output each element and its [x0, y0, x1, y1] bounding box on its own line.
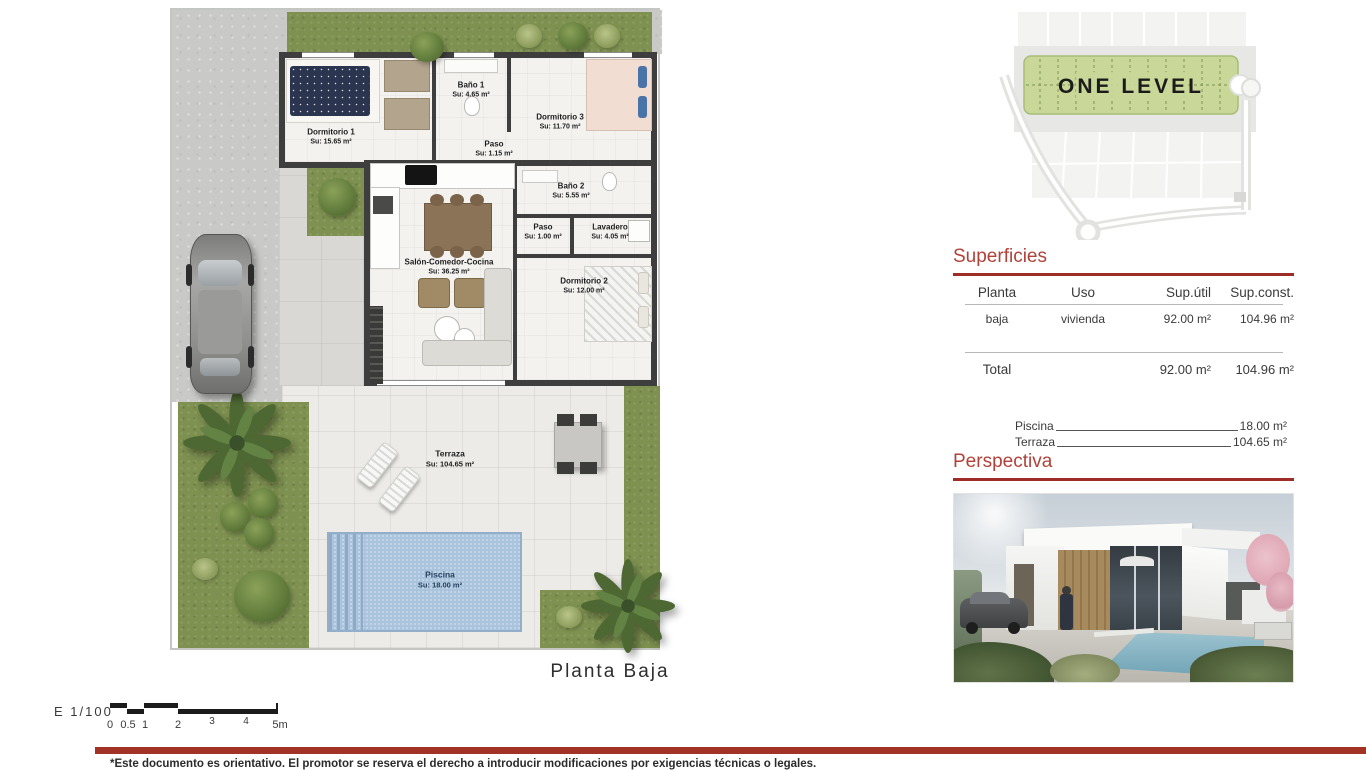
- render-blossom-tree: [1266, 572, 1294, 612]
- footer-rule: [95, 747, 1366, 754]
- extra-piscina: Piscina 18.00 m²: [1015, 419, 1287, 433]
- render-grass-tuft: [1050, 654, 1120, 683]
- superficies-table-header: Planta Uso Sup.útil Sup.const.: [953, 285, 1294, 300]
- car-windshield: [198, 260, 242, 286]
- window: [302, 52, 354, 58]
- pillow: [638, 96, 647, 118]
- total-sup-const: 104.96 m²: [1211, 362, 1294, 377]
- scale-tick-2: 2: [175, 719, 181, 731]
- palm-tree: [182, 388, 292, 498]
- floor-plan: Dormitorio 1Su: 15.65 m² Baño 1Su: 4.65 …: [170, 8, 660, 650]
- perspectiva-title: Perspectiva: [953, 451, 1294, 481]
- scale-tick-05: 0.5: [120, 719, 135, 731]
- extra-piscina-label: Piscina: [1015, 419, 1054, 433]
- cell-uso: vivienda: [1041, 312, 1125, 326]
- tv-unit: [370, 306, 383, 384]
- col-sup-const: Sup.const.: [1211, 285, 1294, 300]
- palm-tree: [580, 558, 676, 654]
- scale-label: E 1/100: [54, 704, 113, 719]
- wall: [513, 160, 517, 386]
- extra-terraza-label: Terraza: [1015, 435, 1055, 449]
- car: [187, 234, 253, 392]
- room-label-piscina: PiscinaSu: 18.00 m²: [418, 570, 462, 591]
- chair: [450, 194, 464, 206]
- render-wall-right: [1182, 546, 1228, 621]
- scale-tick-0: 0: [107, 719, 113, 731]
- perspectiva-section: Perspectiva: [953, 451, 1294, 481]
- wall: [570, 216, 574, 256]
- sofa: [422, 340, 512, 366]
- room-label-dormitorio2: Dormitorio 2Su: 12.00 m²: [560, 276, 608, 295]
- wardrobe: [384, 98, 430, 130]
- pillow: [638, 66, 647, 88]
- render-wheel: [1008, 622, 1020, 634]
- flower-bush: [192, 558, 218, 580]
- wardrobe: [384, 60, 430, 92]
- outdoor-chair: [580, 414, 597, 426]
- pillow: [638, 306, 649, 328]
- cell-sup-const: 104.96 m²: [1211, 312, 1294, 326]
- room-label-lavadero: LavaderoSu: 4.05 m²: [591, 222, 628, 241]
- pool-steps: [329, 534, 363, 630]
- room-label-bano2: Baño 2Su: 5.55 m²: [552, 181, 589, 200]
- car-roof: [198, 290, 242, 354]
- wall: [517, 214, 657, 218]
- superficies-table-row: baja vivienda 92.00 m² 104.96 m²: [953, 312, 1294, 326]
- cell-planta: baja: [953, 312, 1041, 326]
- site-plan: ONE LEVEL: [988, 4, 1280, 240]
- render-wheel: [966, 622, 978, 634]
- scale-tick-4: 4: [243, 716, 249, 727]
- chair: [430, 194, 444, 206]
- bush: [244, 518, 274, 548]
- footer-disclaimer: *Este documento es orientativo. El promo…: [110, 758, 1310, 770]
- chair: [470, 246, 484, 258]
- patio-bush: [318, 178, 356, 216]
- wall: [507, 52, 511, 132]
- extra-terraza-value: 104.65 m²: [1233, 435, 1287, 449]
- dining-table: [424, 203, 492, 251]
- flower-bush: [594, 24, 620, 48]
- divider: [965, 352, 1283, 353]
- kitchen-counter: [370, 163, 515, 189]
- armchair: [418, 278, 450, 308]
- leader-line: [1056, 430, 1238, 431]
- one-level-label: ONE LEVEL: [1058, 75, 1204, 98]
- room-label-terraza: TerrazaSu: 104.65 m²: [426, 449, 474, 470]
- render-car-roof: [970, 592, 1010, 604]
- divider: [965, 304, 1283, 305]
- bed-dorm1-duvet: [290, 66, 370, 116]
- scale-tick-3: 3: [209, 716, 215, 727]
- room-label-paso1: PasoSu: 1.15 m²: [475, 139, 512, 158]
- room-label-dormitorio3: Dormitorio 3Su: 11.70 m²: [536, 112, 584, 131]
- room-label-paso2: PasoSu: 1.00 m²: [524, 222, 561, 241]
- armchair: [454, 278, 486, 308]
- cooktop: [405, 165, 437, 185]
- glass-door: [377, 380, 505, 386]
- superficies-total-row: Total 92.00 m² 104.96 m²: [953, 362, 1294, 377]
- col-uso: Uso: [1041, 285, 1125, 300]
- washer: [628, 220, 650, 242]
- flower-bush: [556, 606, 582, 628]
- scale-tick-1: 1: [142, 719, 148, 731]
- render-umbrella: [1120, 556, 1154, 566]
- leader-line: [1057, 446, 1231, 447]
- superficies-title: Superficies: [953, 246, 1294, 276]
- scale-bar: [110, 703, 280, 715]
- chair: [470, 194, 484, 206]
- outdoor-chair: [580, 462, 597, 474]
- pillow: [638, 272, 649, 294]
- superficies-extras: Piscina 18.00 m² Terraza 104.65 m²: [1015, 419, 1287, 449]
- outdoor-chair: [557, 462, 574, 474]
- room-label-salon: Salón-Comedor-CocinaSu: 36.25 m²: [405, 257, 494, 276]
- col-sup-util: Sup.útil: [1125, 285, 1211, 300]
- bath2-toilet: [602, 172, 617, 191]
- scale-tick-5m: 5m: [272, 719, 287, 731]
- col-planta: Planta: [953, 285, 1041, 300]
- bush: [248, 488, 278, 518]
- cell-sup-util: 92.00 m²: [1125, 312, 1211, 326]
- superficies-section: Superficies Planta Uso Sup.útil Sup.cons…: [953, 246, 1294, 449]
- total-sup-util: 92.00 m²: [1125, 362, 1211, 377]
- window: [584, 52, 632, 58]
- extra-piscina-value: 18.00 m²: [1240, 419, 1287, 433]
- wall: [517, 254, 657, 258]
- total-label: Total: [953, 362, 1041, 377]
- room-label-bano1: Baño 1Su: 4.65 m²: [452, 80, 489, 99]
- plan-caption: Planta Baja: [540, 661, 680, 683]
- render-mullion: [1158, 546, 1160, 630]
- flower-bush: [516, 24, 542, 48]
- bush-large: [234, 570, 290, 622]
- chair: [430, 246, 444, 258]
- room-label-dormitorio1: Dormitorio 1Su: 15.65 m²: [307, 127, 355, 146]
- perspective-render: [953, 493, 1294, 683]
- wall: [432, 52, 436, 168]
- car-rear-window: [200, 358, 240, 376]
- render-person-body: [1060, 594, 1073, 630]
- chair: [450, 246, 464, 258]
- render-patio-table: [1254, 622, 1292, 640]
- window: [454, 52, 494, 58]
- bush-top: [558, 22, 588, 50]
- bath1-vanity: [444, 59, 498, 73]
- extra-terraza: Terraza 104.65 m²: [1015, 435, 1287, 449]
- bush-top: [410, 32, 444, 62]
- oven: [373, 196, 393, 214]
- outdoor-chair: [557, 414, 574, 426]
